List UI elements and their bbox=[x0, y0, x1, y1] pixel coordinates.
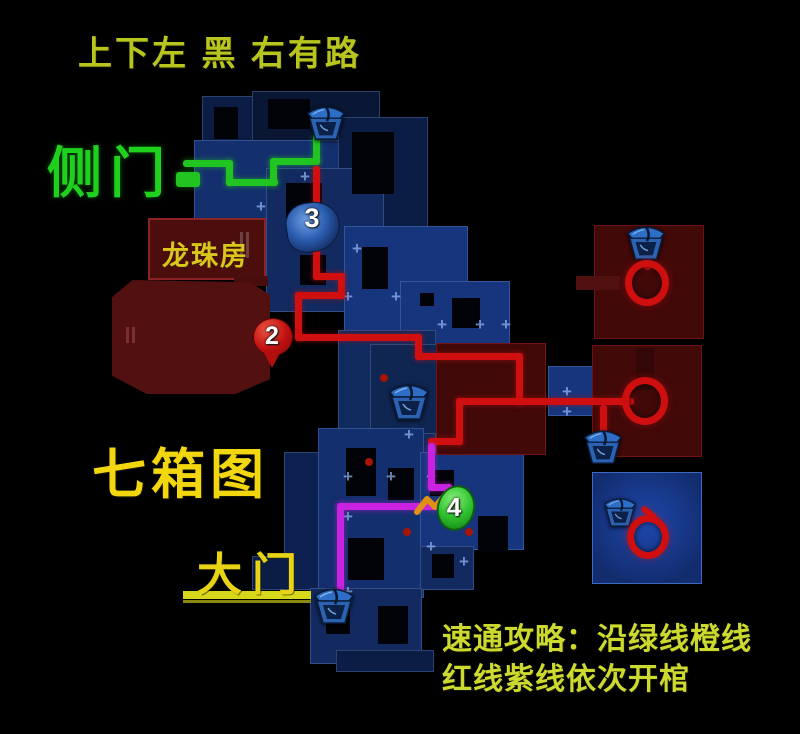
game-map: + + + + + + + + + + + + + + + + + + + + bbox=[0, 0, 800, 734]
grid-cross: + bbox=[475, 316, 485, 333]
grid-cross: + bbox=[300, 168, 310, 185]
wall-mark bbox=[126, 327, 129, 343]
grid-cross: + bbox=[256, 198, 266, 215]
room-cutout bbox=[432, 554, 454, 578]
coffin-icon bbox=[381, 380, 437, 422]
wall-mark bbox=[132, 327, 135, 343]
grid-cross: + bbox=[386, 468, 396, 485]
grid-cross: + bbox=[562, 403, 572, 420]
route-red-segment bbox=[295, 292, 345, 299]
room-cutout bbox=[378, 606, 408, 644]
dragon-room-label: 龙珠房 bbox=[162, 234, 249, 273]
route-green-start-stub bbox=[176, 172, 200, 187]
guide-text-line2: 红线紫线依次开棺 bbox=[442, 654, 690, 698]
grid-cross: + bbox=[352, 240, 362, 257]
red-circle-annotation bbox=[627, 515, 669, 559]
route-purple-segment bbox=[337, 503, 344, 595]
pin-tail bbox=[263, 351, 281, 368]
route-red-segment bbox=[415, 353, 523, 360]
red-corridor-stub bbox=[576, 276, 620, 290]
grid-cross: + bbox=[501, 316, 511, 333]
side-door-label: 侧门 bbox=[47, 128, 173, 208]
grid-cross: + bbox=[437, 316, 447, 333]
coffin-icon bbox=[306, 584, 362, 626]
main-gate-label: 大门 bbox=[197, 538, 307, 603]
guide-text-line1: 速通攻略：沿绿线橙线 bbox=[442, 614, 752, 658]
grid-cross: + bbox=[343, 468, 353, 485]
blue-beast-marker: 3 bbox=[286, 202, 338, 252]
grid-cross: + bbox=[404, 426, 414, 443]
grid-cross: + bbox=[459, 553, 469, 570]
route-red-segment bbox=[456, 398, 634, 405]
marker-3-number: 3 bbox=[300, 205, 324, 232]
red-circle-annotation bbox=[622, 377, 668, 425]
seven-box-map-label: 七箱图 bbox=[92, 430, 269, 509]
grid-cross: + bbox=[391, 288, 401, 305]
route-hint-text: 上下左 黑 右有路 bbox=[78, 26, 362, 75]
marker-4-number: 4 bbox=[437, 494, 471, 520]
coffin-icon bbox=[300, 102, 352, 142]
room-cutout bbox=[348, 538, 384, 580]
red-circle-annotation bbox=[625, 260, 669, 306]
map-room bbox=[336, 650, 434, 672]
red-dot bbox=[365, 458, 373, 466]
route-red-segment bbox=[295, 334, 422, 341]
room-cutout bbox=[214, 107, 238, 139]
big-red-room bbox=[112, 280, 270, 394]
grid-cross: + bbox=[343, 508, 353, 525]
red-map-pin: 2 bbox=[253, 318, 293, 370]
room-cutout bbox=[352, 132, 394, 194]
green-blob-marker: 4 bbox=[437, 485, 475, 531]
room-cutout bbox=[362, 247, 388, 289]
room-cutout bbox=[420, 293, 434, 306]
route-purple-segment bbox=[428, 443, 435, 490]
marker-2-number: 2 bbox=[253, 324, 291, 349]
room-cutout bbox=[478, 516, 508, 552]
coffin-icon bbox=[620, 222, 672, 262]
coffin-icon bbox=[577, 426, 629, 466]
red-dot bbox=[403, 528, 411, 536]
grid-cross: + bbox=[426, 538, 436, 555]
